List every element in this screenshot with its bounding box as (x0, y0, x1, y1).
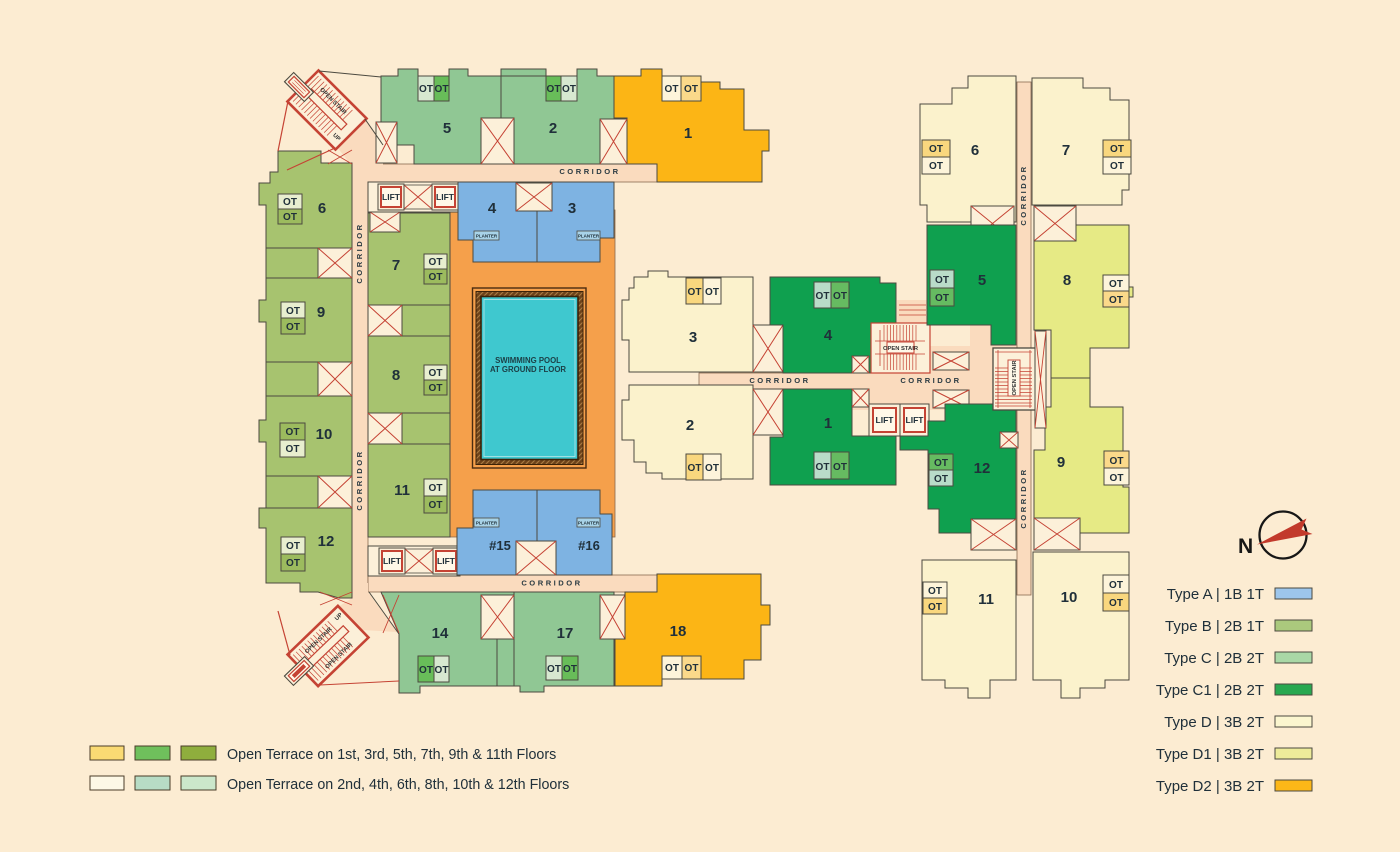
svg-text:Type D1 | 3B 2T: Type D1 | 3B 2T (1156, 746, 1264, 763)
svg-text:OT: OT (1110, 144, 1124, 155)
svg-text:Type B | 2B 1T: Type B | 2B 1T (1165, 618, 1264, 635)
svg-text:OT: OT (1109, 580, 1123, 591)
svg-text:4: 4 (824, 327, 833, 344)
svg-text:OT: OT (286, 322, 300, 333)
svg-text:Open Terrace on 1st, 3rd, 5th,: Open Terrace on 1st, 3rd, 5th, 7th, 9th … (227, 747, 556, 763)
svg-text:#16: #16 (578, 538, 600, 553)
svg-text:LIFT: LIFT (382, 192, 401, 202)
svg-text:OT: OT (429, 483, 443, 494)
svg-text:OT: OT (1110, 161, 1124, 172)
svg-text:OT: OT (286, 558, 300, 569)
svg-text:LIFT: LIFT (437, 556, 456, 566)
svg-text:1: 1 (684, 125, 692, 142)
svg-text:OT: OT (547, 84, 561, 95)
svg-text:14: 14 (432, 625, 449, 642)
svg-text:12: 12 (974, 460, 991, 477)
svg-text:2: 2 (686, 417, 694, 434)
svg-text:Type A | 1B 1T: Type A | 1B 1T (1167, 586, 1264, 603)
svg-text:Type D2 | 3B 2T: Type D2 | 3B 2T (1156, 778, 1264, 795)
svg-text:OT: OT (935, 275, 949, 286)
svg-text:10: 10 (316, 426, 333, 443)
svg-text:OT: OT (562, 84, 576, 95)
svg-text:#15: #15 (489, 538, 511, 553)
svg-text:OT: OT (563, 664, 577, 675)
svg-text:OT: OT (688, 287, 702, 298)
svg-text:CORRIDOR: CORRIDOR (749, 376, 810, 385)
svg-text:OT: OT (688, 463, 702, 474)
svg-text:OT: OT (429, 368, 443, 379)
svg-text:7: 7 (392, 257, 400, 274)
svg-text:OT: OT (684, 84, 698, 95)
svg-text:CORRIDOR: CORRIDOR (1019, 164, 1028, 225)
svg-text:OT: OT (665, 84, 679, 95)
svg-text:PLANTER: PLANTER (476, 234, 498, 239)
svg-text:LIFT: LIFT (383, 556, 402, 566)
svg-text:OT: OT (816, 462, 830, 473)
svg-text:OT: OT (429, 500, 443, 511)
svg-text:OT: OT (934, 474, 948, 485)
svg-text:4: 4 (488, 200, 497, 217)
svg-text:SWIMMING POOL: SWIMMING POOL (495, 356, 561, 365)
svg-text:OT: OT (685, 663, 699, 674)
svg-text:Open Terrace on 2nd, 4th, 6th,: Open Terrace on 2nd, 4th, 6th, 8th, 10th… (227, 777, 569, 793)
svg-text:N: N (1238, 535, 1253, 558)
svg-text:OPEN STAIR: OPEN STAIR (1012, 360, 1018, 396)
svg-text:OT: OT (1109, 279, 1123, 290)
svg-text:OT: OT (435, 84, 449, 95)
svg-text:OT: OT (928, 586, 942, 597)
svg-text:9: 9 (317, 304, 325, 321)
svg-text:1: 1 (824, 415, 832, 432)
svg-text:18: 18 (670, 623, 687, 640)
svg-text:AT GROUND FLOOR: AT GROUND FLOOR (490, 365, 566, 374)
svg-text:3: 3 (568, 200, 576, 217)
svg-text:OT: OT (283, 212, 297, 223)
svg-text:3: 3 (689, 329, 697, 346)
svg-text:OT: OT (928, 602, 942, 613)
svg-text:2: 2 (549, 120, 557, 137)
svg-text:OT: OT (547, 664, 561, 675)
svg-text:Type C1 | 2B 2T: Type C1 | 2B 2T (1156, 682, 1264, 699)
svg-text:OT: OT (429, 257, 443, 268)
svg-text:11: 11 (394, 482, 410, 499)
svg-text:LIFT: LIFT (436, 192, 455, 202)
svg-text:OT: OT (419, 665, 433, 676)
svg-text:6: 6 (971, 142, 979, 159)
svg-text:17: 17 (557, 625, 574, 642)
svg-text:8: 8 (392, 367, 400, 384)
svg-text:OT: OT (1109, 598, 1123, 609)
svg-text:LIFT: LIFT (876, 415, 895, 425)
svg-text:OT: OT (435, 665, 449, 676)
svg-text:OT: OT (705, 463, 719, 474)
svg-text:OT: OT (429, 383, 443, 394)
svg-text:OT: OT (1109, 295, 1123, 306)
svg-text:OT: OT (286, 306, 300, 317)
svg-text:OT: OT (833, 462, 847, 473)
svg-text:5: 5 (443, 120, 451, 137)
svg-text:CORRIDOR: CORRIDOR (559, 167, 620, 176)
svg-text:LIFT: LIFT (906, 415, 925, 425)
svg-text:CORRIDOR: CORRIDOR (1019, 467, 1028, 528)
svg-text:CORRIDOR: CORRIDOR (521, 579, 582, 588)
svg-text:OT: OT (283, 197, 297, 208)
svg-text:OT: OT (286, 427, 300, 438)
svg-text:OT: OT (286, 541, 300, 552)
svg-text:OT: OT (929, 161, 943, 172)
svg-text:OT: OT (1110, 456, 1124, 467)
svg-text:11: 11 (978, 591, 994, 608)
svg-text:9: 9 (1057, 454, 1065, 471)
svg-text:12: 12 (318, 533, 335, 550)
svg-text:OT: OT (286, 444, 300, 455)
svg-text:OT: OT (929, 144, 943, 155)
svg-text:PLANTER: PLANTER (578, 521, 600, 526)
svg-text:OT: OT (665, 663, 679, 674)
svg-text:PLANTER: PLANTER (476, 521, 498, 526)
svg-text:OT: OT (419, 84, 433, 95)
svg-text:Type C | 2B 2T: Type C | 2B 2T (1164, 650, 1264, 667)
svg-text:OT: OT (816, 291, 830, 302)
svg-text:7: 7 (1062, 142, 1070, 159)
svg-text:6: 6 (318, 200, 326, 217)
svg-text:OT: OT (705, 287, 719, 298)
svg-text:OT: OT (833, 291, 847, 302)
svg-text:OT: OT (429, 272, 443, 283)
svg-text:OT: OT (935, 293, 949, 304)
svg-text:10: 10 (1061, 589, 1078, 606)
svg-text:OPEN STAIR: OPEN STAIR (883, 346, 919, 352)
svg-text:5: 5 (978, 272, 986, 289)
svg-text:8: 8 (1063, 272, 1071, 289)
svg-text:OT: OT (1110, 473, 1124, 484)
svg-text:PLANTER: PLANTER (578, 234, 600, 239)
svg-text:CORRIDOR: CORRIDOR (900, 376, 961, 385)
svg-text:OT: OT (934, 458, 948, 469)
svg-text:CORRIDOR: CORRIDOR (355, 222, 364, 283)
svg-text:Type D | 3B 2T: Type D | 3B 2T (1164, 714, 1264, 731)
svg-text:CORRIDOR: CORRIDOR (355, 449, 364, 510)
